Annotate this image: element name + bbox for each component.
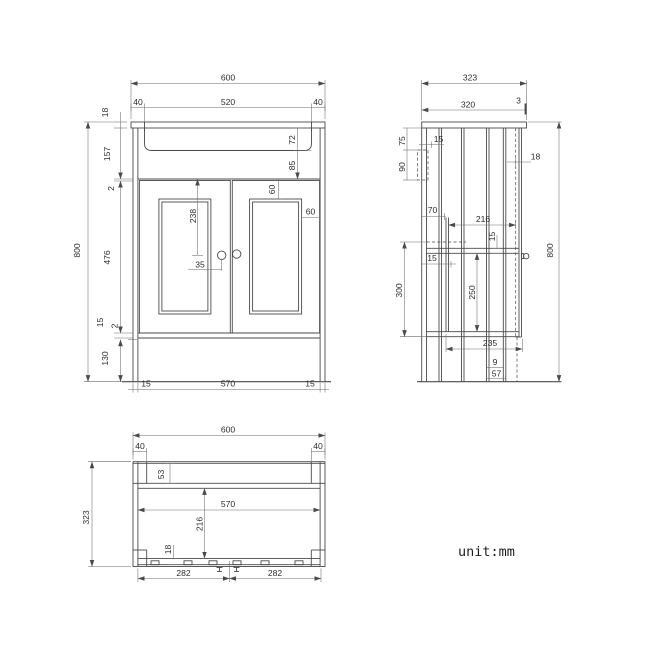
left-door-knob [218,251,226,259]
dim-label: 216 [195,517,205,532]
dim-label: 75 [397,136,407,146]
dim-label: 570 [221,499,236,509]
dim-label: 72 [287,135,297,145]
dim-label: 9 [493,357,498,367]
dim-label: 15 [141,379,151,389]
fixing-notch [233,561,241,565]
dim-label: 35 [195,260,205,270]
front-view: 600 40 520 40 18 15 [72,73,331,393]
dim-plan-internal-width: 570 [138,499,320,510]
dim-label: 85 [287,161,297,171]
dim-label: 18 [531,152,541,162]
dim-front-worktop-thickness: 18 [100,108,127,128]
right-door-panel [250,199,302,314]
left-door-panel [159,199,211,314]
dim-label: 53 [156,470,166,480]
dim-side-bracket: 75 90 15 [397,128,444,180]
dim-front-top-splits: 40 520 40 [131,97,325,122]
dim-label: 2 [106,186,116,191]
dim-label: 800 [72,243,82,258]
worktop-side [422,122,527,128]
dim-label: 570 [221,379,236,389]
dim-label: 320 [461,100,476,110]
dim-label: 15 [95,318,105,328]
dim-label: 282 [176,568,191,578]
dim-label: 60 [267,185,277,195]
worktop [131,122,325,128]
fixing-notch [295,561,303,565]
dim-plan-internal-depth: 216 [195,488,205,558]
front-structure [122,122,331,382]
dim-label: 3 [516,96,521,106]
dim-label: 15 [487,232,497,242]
dim-side-body-depth: 320 3 [422,96,527,115]
dim-label: 300 [394,283,404,298]
dim-front-bottom-splits: 15 570 15 [128,379,329,393]
dim-label: 90 [397,162,407,172]
hinge-clip [217,568,223,572]
dim-plan-overall-depth: 323 [81,462,131,567]
dim-label: 15 [434,134,444,144]
dim-plan-fixing-spacing: 282 282 [138,561,321,582]
unit-label: unit:mm [458,544,515,560]
fixing-notch [261,561,269,565]
dim-label: 520 [221,97,236,107]
dim-front-basin-to-door: 85 [287,151,298,180]
dim-front-overall-width: 600 [131,73,325,120]
fixing-notch [184,561,192,565]
dim-label: 600 [221,73,236,83]
dim-label: 282 [268,568,283,578]
dim-label: 15 [305,379,315,389]
dim-side-shelf-to-bottom: 250 [467,253,477,331]
dim-label: 18 [100,108,110,118]
dim-label: 250 [467,285,477,300]
dim-label: 800 [545,243,555,258]
dim-label: 40 [135,441,145,451]
plan-view: 600 40 40 323 53 [81,425,325,583]
dim-label: 18 [163,545,173,555]
dim-front-handle-vertical: 238 [188,179,203,255]
dim-label: 235 [483,338,498,348]
dim-label: 238 [188,209,198,224]
dim-plan-front-rail: 18 [163,545,179,565]
vanity-technical-drawing: 600 40 520 40 18 15 [0,0,650,650]
left-door [139,181,230,334]
dim-side-door-thickness: 18 [507,152,540,166]
fixing-notch [209,561,217,565]
front-dimensions: 600 40 520 40 18 15 [72,73,329,393]
dim-label: 15 [427,253,437,263]
dim-plan-overall-width: 600 [133,425,325,460]
right-door-knob [233,250,241,258]
side-dimensions: 323 320 3 800 75 90 [394,73,562,382]
dim-front-overall-height: 800 [72,122,122,382]
dim-label: 57 [492,369,502,379]
dim-label: 476 [102,250,112,265]
dim-front-panel-side-inset: 60 [302,207,320,222]
dim-label: 60 [306,207,316,217]
dim-side-shelf-back-offset: 70 [422,205,446,220]
dim-label: 157 [102,147,112,162]
dim-front-left-chain: 157 2 476 15 2 130 [95,128,137,382]
dim-label: 2 [110,323,120,328]
dim-label: 40 [313,441,323,451]
hinge-clip [234,568,240,572]
dim-label: 216 [476,214,491,224]
dim-front-handle-offset: 35 [188,259,222,274]
dim-label: 130 [100,351,110,366]
dim-label: 600 [221,425,236,435]
right-door [232,181,319,334]
dim-side-overall-depth: 323 [422,73,527,121]
dim-label: 40 [313,97,323,107]
dim-label: 323 [81,510,91,525]
dim-label: 70 [428,205,438,215]
dim-plan-back-rail: 53 [156,463,175,483]
dim-front-basin-depth: 72 [287,128,312,151]
dim-label: 40 [133,97,143,107]
fixing-notch [151,561,159,565]
dim-plan-overhangs: 40 40 [133,441,325,461]
dim-front-panel-top-inset: 60 [267,179,283,199]
side-view: 323 320 3 800 75 90 [394,73,562,382]
dim-label: 323 [463,73,478,83]
